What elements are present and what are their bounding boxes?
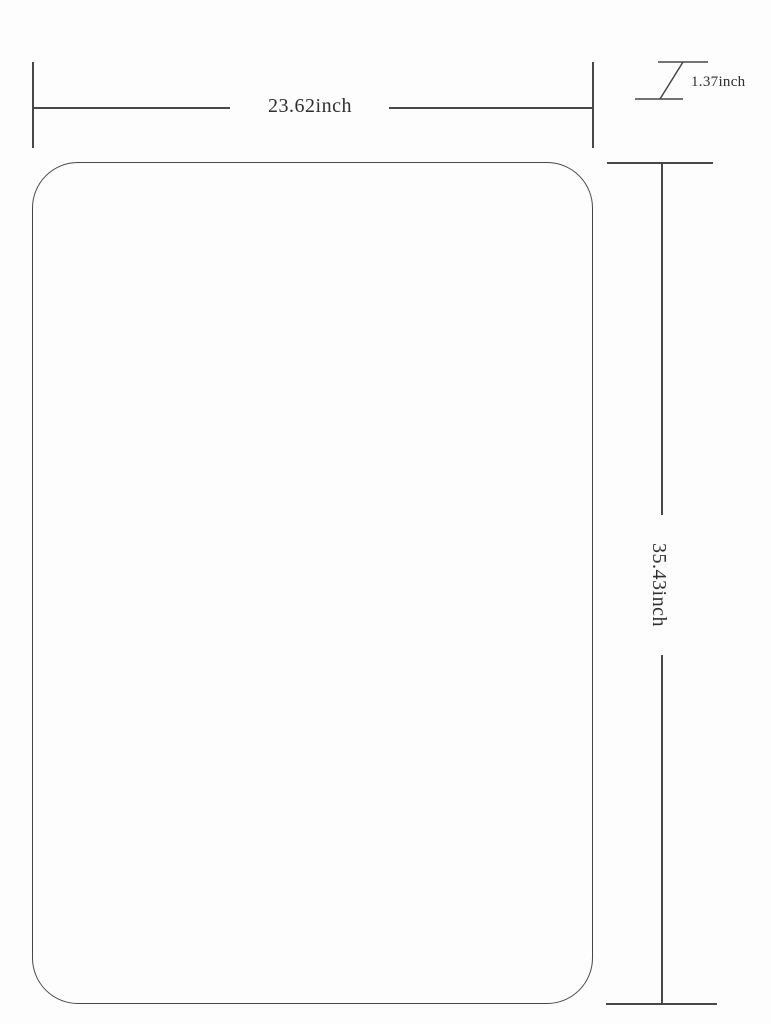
thickness-symbol [655, 60, 687, 102]
width-extension-line-right [592, 62, 594, 148]
product-outline [32, 162, 593, 1004]
width-dimension-label: 23.62inch [230, 95, 390, 117]
height-dimension-label: 35.43inch [648, 535, 670, 635]
width-dimension-line-right-segment [389, 107, 592, 109]
width-dimension-line-left-segment [33, 107, 230, 109]
height-dimension-line-bottom-segment [661, 655, 663, 1004]
width-extension-line-left [32, 62, 34, 148]
height-extension-line-top [607, 162, 713, 164]
thickness-dimension-label: 1.37inch [691, 74, 745, 91]
thickness-symbol-diagonal [660, 62, 683, 99]
height-dimension-line-top-segment [661, 163, 663, 515]
dimension-diagram: 23.62inch 35.43inch 1.37inch [0, 0, 771, 1024]
